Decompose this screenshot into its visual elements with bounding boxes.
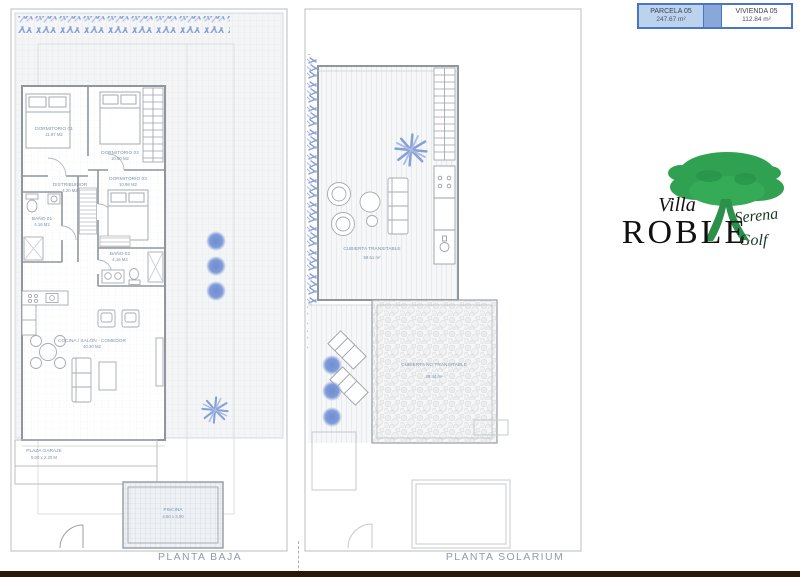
area-dorm2: 10.80 M2 [111,156,130,161]
gravel-roof [372,300,497,443]
area-distribuidor: 4.20 M2 [62,188,78,193]
label-piscina: PISCINA [163,507,183,513]
vivienda-cell: VIVIENDA 05 112.84 m² [722,5,791,27]
logo-roble-text: ROBLE [622,214,748,251]
planta-solarium-drawing: CUBIERTA TRANSITABLE 59.51 m² CUBIERTA N… [304,8,582,553]
closet-dorm3 [100,236,130,247]
label-bano1: BAÑO 01 [32,215,53,222]
sheet-bottom-rule [0,571,800,577]
area-bano1: 4.16 M2 [34,222,50,227]
area-dorm1: 11.97 M2 [45,132,63,137]
logo-golf-text: Golf [739,232,770,249]
parcela-value: 247.67 m² [656,16,685,24]
vivienda-label: VIVIENDA 05 [735,8,777,17]
planta-baja-svg: DORMITORIO 01 11.97 M2 DORMITORIO 02 10.… [10,8,288,553]
label-bano2: BAÑO 02 [110,250,131,257]
planta-solarium-title: PLANTA SOLARIUM [415,551,595,563]
stairs [143,88,163,162]
logo-svg: Villa ROBLE Serena Golf [597,143,800,261]
sheet-fold-divider [298,541,299,573]
garden-bushes [322,355,342,427]
label-no-transitable: CUBIERTA NO TRANSITABLE [401,362,467,368]
garden-bushes [206,231,226,301]
villa-roble-logo: Villa ROBLE Serena Golf [597,143,800,261]
area-info-table: PARCELA 05 247.67 m² VIVIENDA 05 112.84 … [637,3,793,29]
planta-baja-drawing: DORMITORIO 01 11.97 M2 DORMITORIO 02 10.… [10,8,288,553]
bed-dorm2 [100,92,140,144]
table-divider [704,5,722,27]
logo-villa-text: Villa [658,194,695,216]
hedge-top [18,16,230,33]
plan-sheet: DORMITORIO 01 11.97 M2 DORMITORIO 02 10.… [0,0,800,577]
stairs [434,68,455,160]
planta-solarium-svg: CUBIERTA TRANSITABLE 59.51 m² CUBIERTA N… [304,8,582,553]
label-transitable: CUBIERTA TRANSITABLE [343,246,400,252]
vivienda-value: 112.84 m² [742,16,771,24]
area-salon: 40.30 M2 [83,344,102,349]
area-bano2: 4.16 M2 [112,257,128,262]
bed-dorm1 [26,94,70,148]
area-no-transitable: 29.44 m² [426,374,444,379]
logo-serena-text: Serena [734,205,779,226]
area-dorm3: 10.98 M2 [119,182,138,187]
label-salon: COCINA / SALÓN - COMEDOR [58,337,127,344]
wardrobe [80,188,97,234]
label-garaje: PLAZA GARAJE [26,448,61,454]
area-transitable: 59.51 m² [364,255,382,260]
area-garaje: 5.00 x 2.20 M [31,455,57,460]
summer-kitchen [434,166,455,264]
planta-baja-title: PLANTA BAJA [120,551,280,563]
bed-dorm3 [108,190,148,240]
parcela-label: PARCELA 05 [650,8,692,17]
parcela-cell: PARCELA 05 247.67 m² [639,5,704,27]
area-piscina: 4.60 x 3.00 [162,514,184,519]
